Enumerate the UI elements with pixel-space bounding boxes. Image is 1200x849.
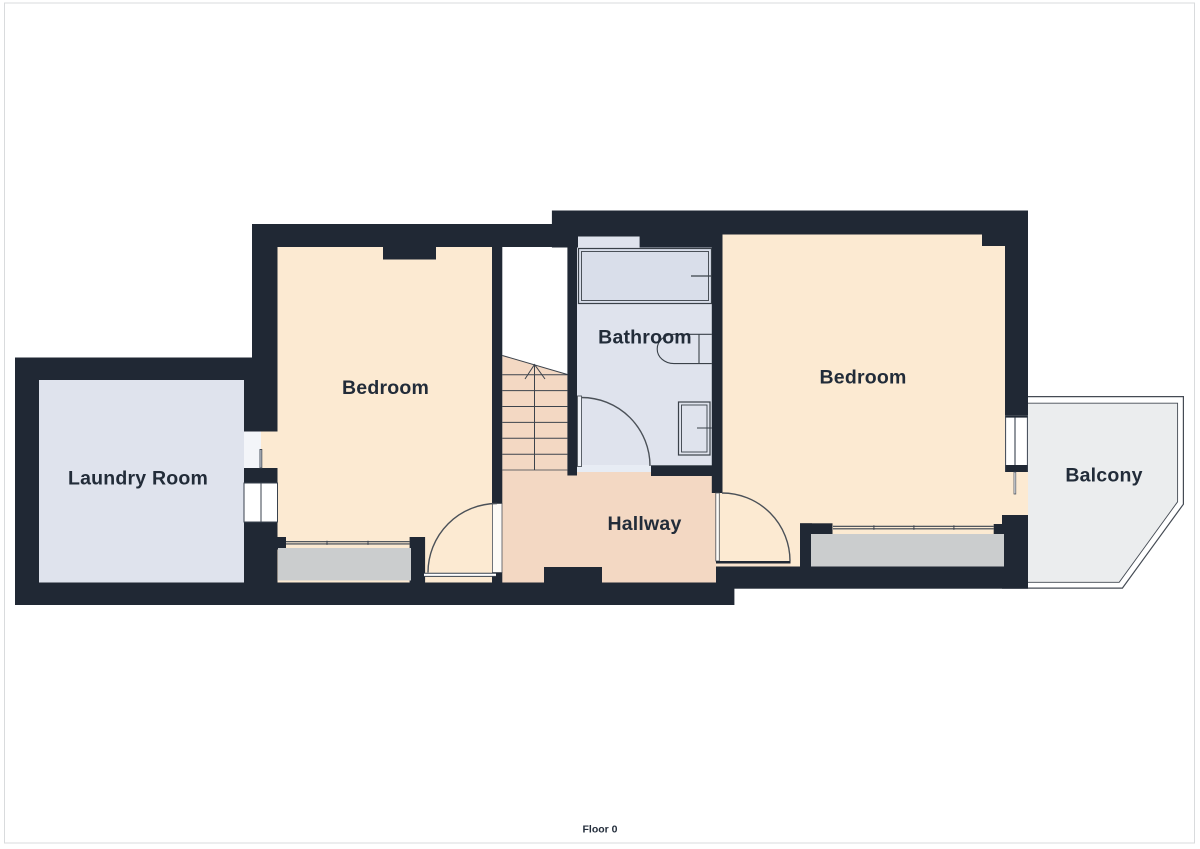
svg-text:Bedroom: Bedroom xyxy=(342,377,429,399)
svg-text:Bathroom: Bathroom xyxy=(598,327,692,349)
svg-text:Floor 0: Floor 0 xyxy=(582,824,617,836)
svg-text:Bedroom: Bedroom xyxy=(820,367,907,389)
svg-text:Laundry Room: Laundry Room xyxy=(68,468,208,490)
svg-text:Hallway: Hallway xyxy=(607,513,681,535)
svg-text:Balcony: Balcony xyxy=(1065,465,1142,487)
